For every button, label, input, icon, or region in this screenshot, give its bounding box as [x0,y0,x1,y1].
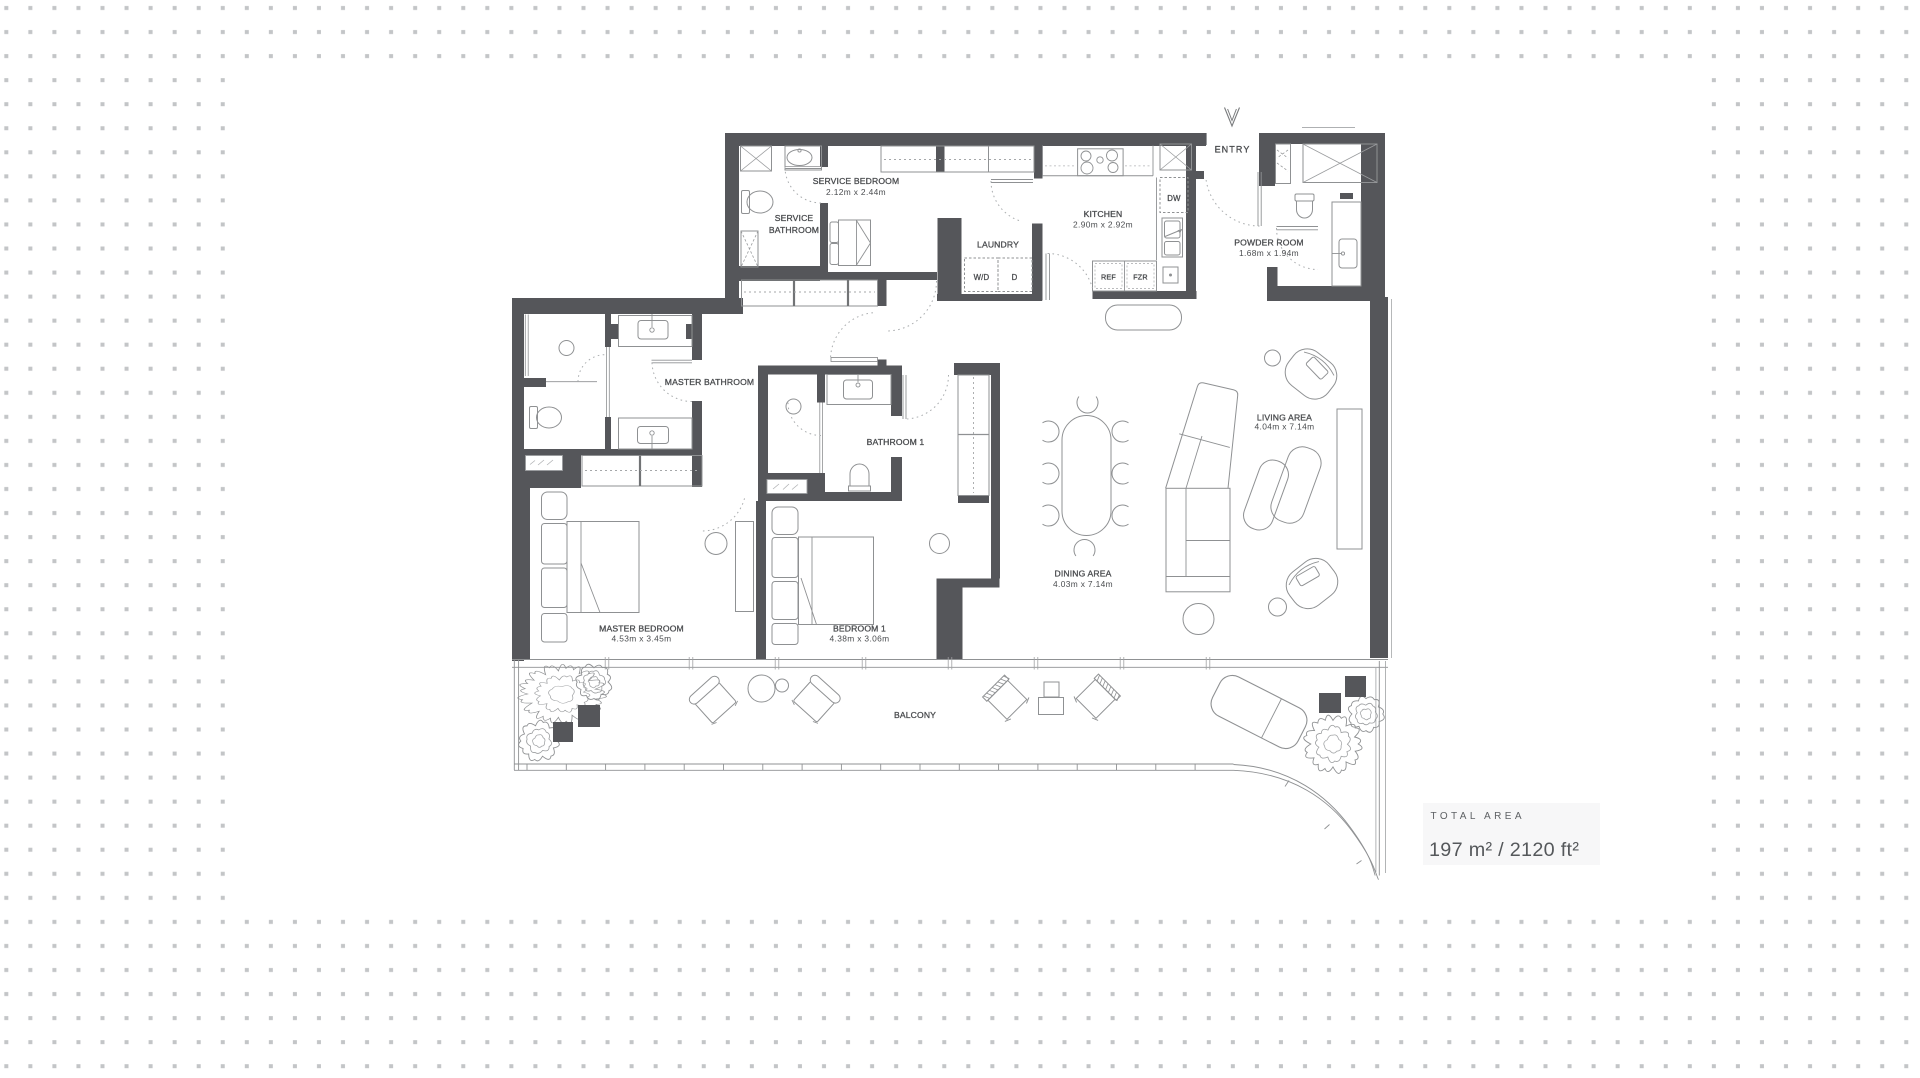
svg-text:2.90m x 2.92m: 2.90m x 2.92m [1073,220,1133,230]
svg-text:TOTAL AREA: TOTAL AREA [1431,811,1525,822]
svg-text:4.04m x 7.14m: 4.04m x 7.14m [1255,421,1315,431]
svg-text:MASTER BATHROOM: MASTER BATHROOM [665,377,754,387]
svg-text:SERVICE BEDROOM: SERVICE BEDROOM [813,176,900,186]
svg-text:W/D: W/D [974,273,990,282]
svg-text:BALCONY: BALCONY [894,710,936,720]
svg-text:4.03m x 7.14m: 4.03m x 7.14m [1053,579,1113,589]
svg-text:LAUNDRY: LAUNDRY [977,240,1019,250]
svg-text:FZR: FZR [1133,273,1148,282]
svg-text:MASTER BEDROOM: MASTER BEDROOM [599,624,684,634]
svg-text:POWDER ROOM: POWDER ROOM [1234,238,1303,248]
svg-text:BATHROOM 1: BATHROOM 1 [867,437,925,447]
svg-text:4.53m x 3.45m: 4.53m x 3.45m [612,634,672,644]
svg-text:KITCHEN: KITCHEN [1084,209,1123,219]
svg-text:1.68m x 1.94m: 1.68m x 1.94m [1239,248,1299,258]
svg-text:197 m² / 2120 ft²: 197 m² / 2120 ft² [1429,839,1579,861]
svg-text:DW: DW [1167,194,1181,203]
svg-text:ENTRY: ENTRY [1215,145,1251,155]
svg-text:D: D [1012,273,1018,282]
svg-text:2.12m x 2.44m: 2.12m x 2.44m [826,187,886,197]
svg-text:BEDROOM 1: BEDROOM 1 [833,624,886,634]
svg-text:REF: REF [1101,273,1116,282]
svg-text:DINING AREA: DINING AREA [1054,569,1111,579]
svg-text:SERVICE: SERVICE [775,213,814,223]
svg-text:BATHROOM: BATHROOM [769,225,819,235]
svg-text:4.38m x 3.06m: 4.38m x 3.06m [830,634,890,644]
